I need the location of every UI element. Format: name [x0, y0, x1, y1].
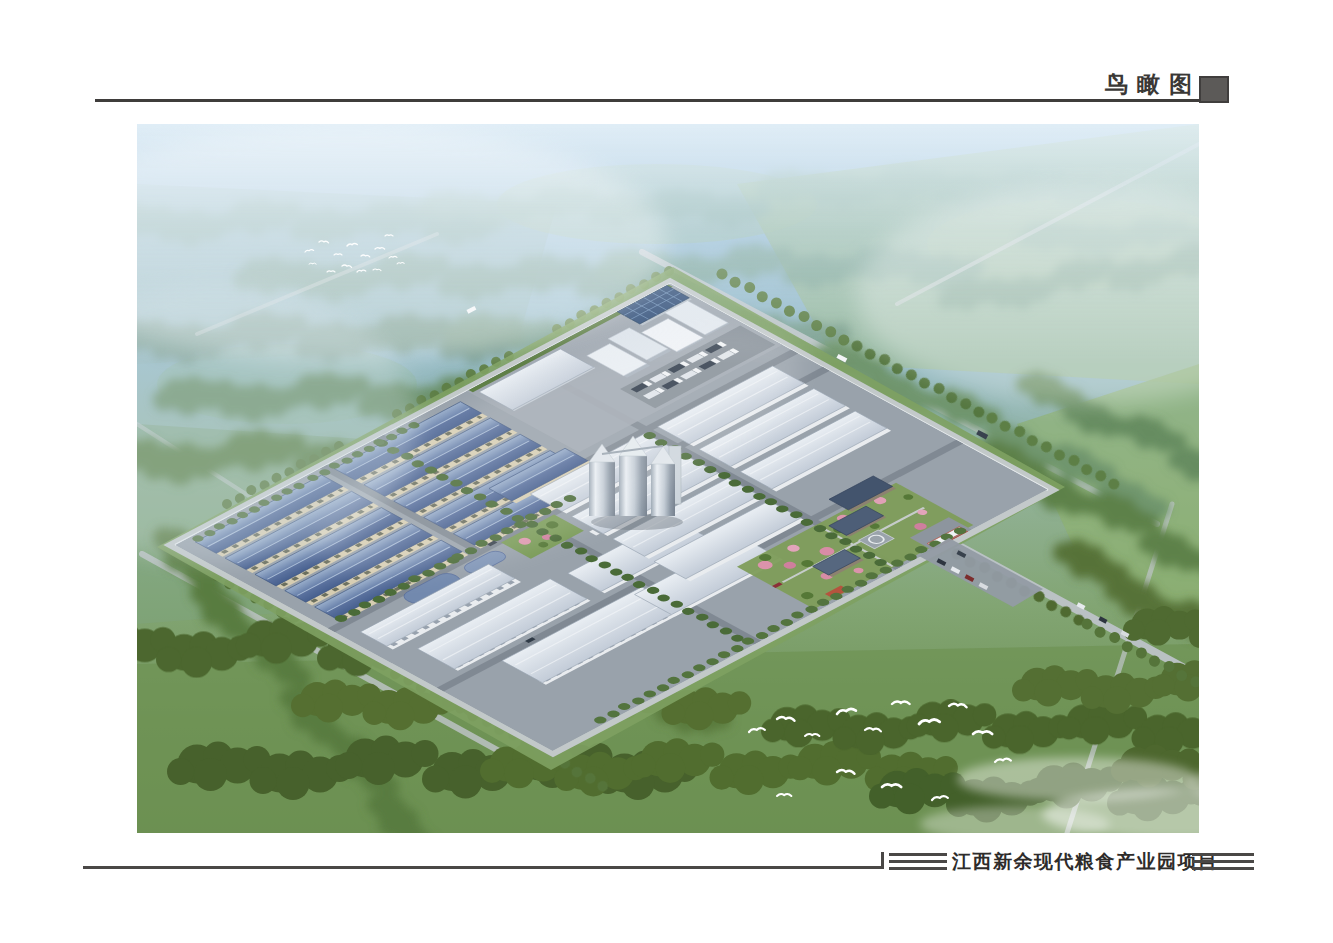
footer-lines-right-icon: [1192, 853, 1254, 870]
sheet: 鸟瞰图: [0, 0, 1333, 943]
project-title: 江西新余现代粮食产业园项目: [952, 851, 1219, 873]
drawing-type-label: 鸟瞰图: [1105, 71, 1201, 97]
footer-rule: [83, 866, 883, 869]
footer-lines-left-icon: [889, 853, 947, 870]
aerial-rendering-figure: [137, 124, 1199, 833]
header-marker-square-icon: [1199, 76, 1229, 103]
footer-bracket: [881, 852, 884, 869]
header-rule: [95, 99, 1199, 102]
aerial-rendering: [137, 124, 1199, 833]
